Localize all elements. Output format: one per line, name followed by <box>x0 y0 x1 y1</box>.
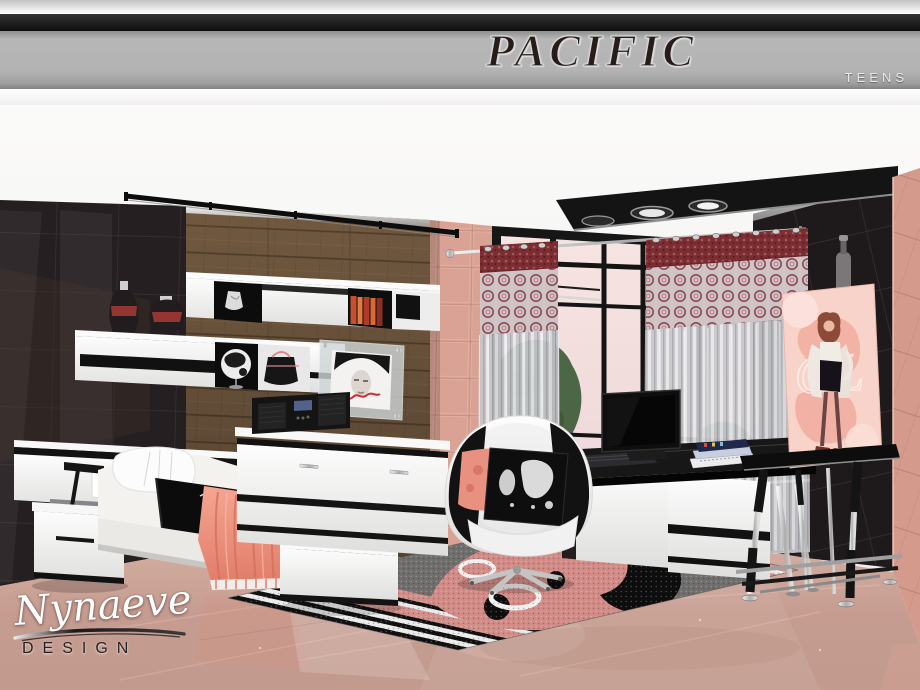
dresser <box>235 427 450 556</box>
jewelry-bust <box>225 291 243 310</box>
pink-tile-column <box>893 168 920 644</box>
world-map-cushion <box>484 448 568 526</box>
fashion-poster: GL <box>782 284 882 468</box>
decor-books <box>351 296 383 326</box>
banner-fade <box>0 89 920 105</box>
set-tagline: TEENS <box>845 70 908 85</box>
banner-silver-band: PACIFIC TEENS <box>0 31 920 89</box>
banner-top-strip <box>0 0 920 14</box>
banner-black-bar <box>0 14 920 31</box>
set-title: PACIFIC <box>486 24 697 77</box>
promo-image: GL PACIFIC TEENS Nynaeve <box>0 0 920 690</box>
radio <box>252 392 350 434</box>
